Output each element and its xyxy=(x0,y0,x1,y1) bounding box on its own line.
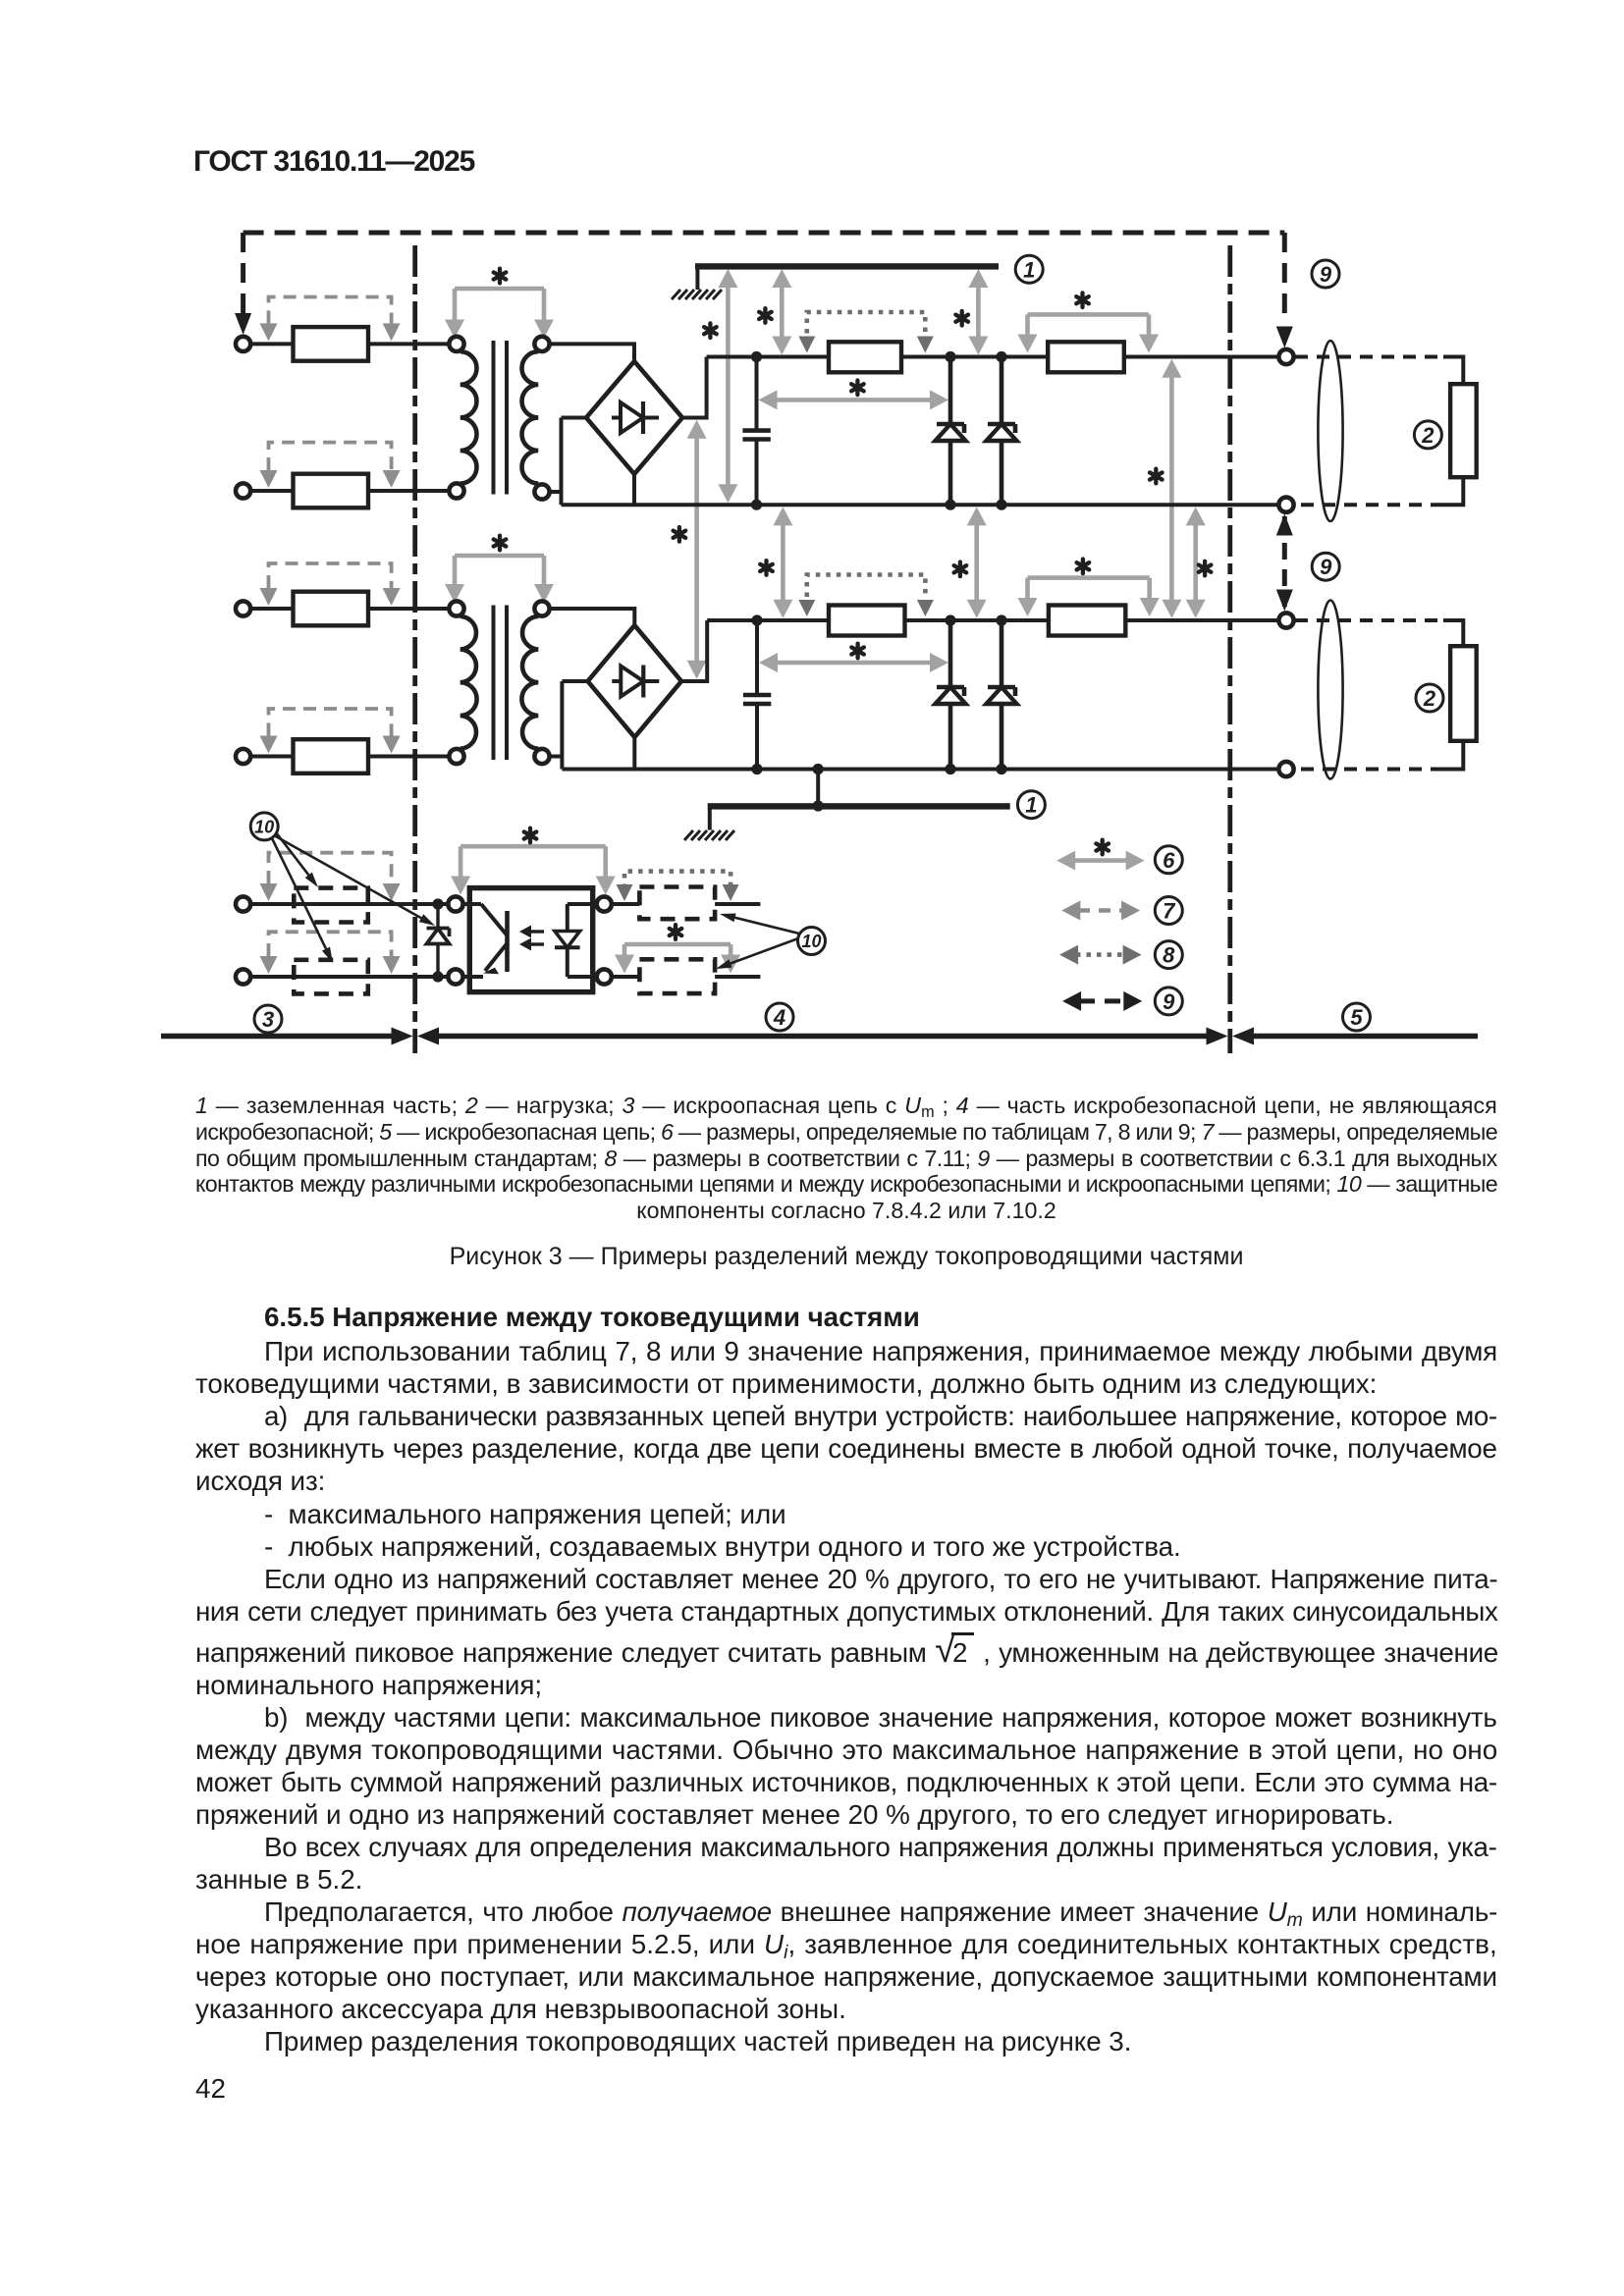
svg-text:10: 10 xyxy=(254,817,274,836)
svg-text:1: 1 xyxy=(1023,257,1035,282)
svg-text:1: 1 xyxy=(1025,793,1037,818)
svg-text:3: 3 xyxy=(262,1007,274,1032)
svg-text:9: 9 xyxy=(1320,262,1332,287)
svg-text:10: 10 xyxy=(801,932,821,951)
svg-text:2: 2 xyxy=(1423,686,1436,711)
svg-text:4: 4 xyxy=(773,1005,785,1030)
svg-text:9: 9 xyxy=(1320,555,1332,579)
svg-text:5: 5 xyxy=(1350,1005,1363,1030)
svg-text:2: 2 xyxy=(1421,423,1435,448)
svg-text:6: 6 xyxy=(1163,848,1175,873)
svg-text:9: 9 xyxy=(1163,989,1175,1014)
svg-text:7: 7 xyxy=(1163,899,1176,924)
svg-text:8: 8 xyxy=(1163,943,1175,968)
